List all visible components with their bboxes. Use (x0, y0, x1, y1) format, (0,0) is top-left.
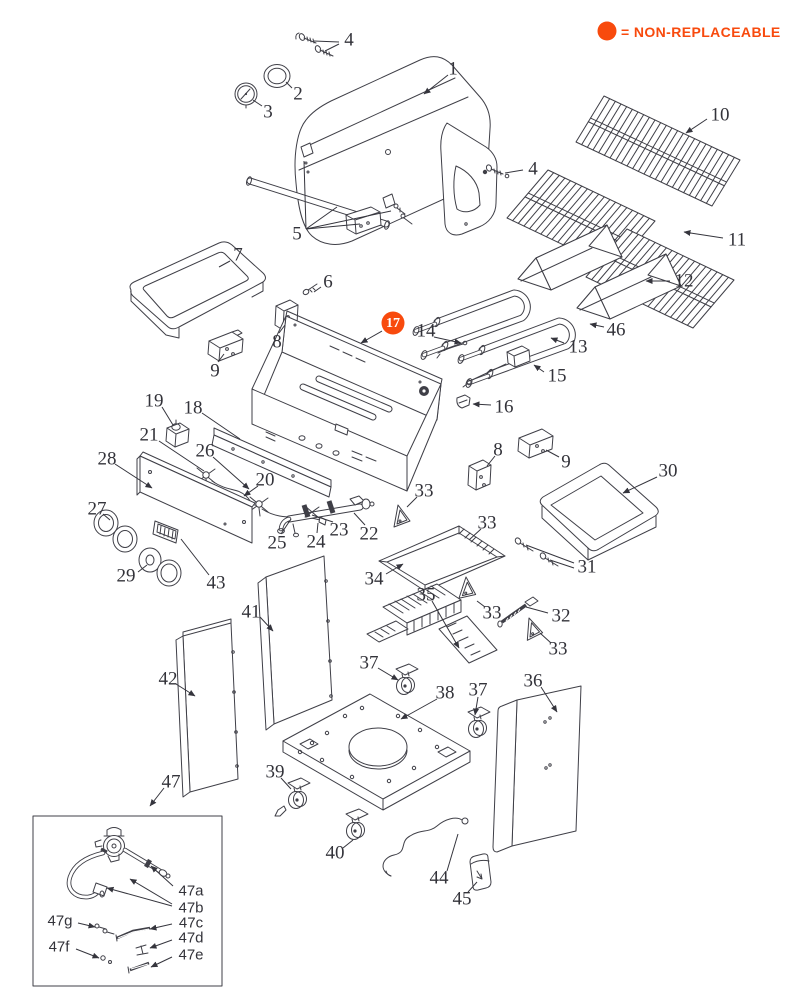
part-label: 40 (326, 843, 345, 864)
part-label: 36 (524, 671, 543, 692)
leader-line (505, 170, 523, 173)
part-label: 47d (178, 930, 203, 947)
part-label: 19 (145, 391, 164, 412)
part-label: 24 (307, 532, 327, 553)
part-label: 39 (266, 762, 285, 783)
part-label: 13 (569, 337, 588, 358)
part-label: 26 (196, 441, 215, 462)
part-label: 15 (548, 366, 567, 387)
leader-line (107, 888, 172, 906)
leader-line (162, 407, 173, 425)
part-16-clip (457, 395, 470, 408)
leader-line (534, 365, 544, 372)
part-label: 20 (256, 470, 275, 491)
part-label: 22 (360, 524, 379, 545)
part-label: 10 (711, 105, 730, 126)
legend: = NON-REPLACEABLE (598, 22, 781, 41)
part-40-caster (346, 809, 368, 840)
part-label: 45 (453, 889, 472, 910)
part-47b-hose (69, 849, 107, 897)
part-47f-nuts (101, 956, 112, 964)
part-label: 2 (293, 84, 303, 105)
part-label: 33 (415, 481, 434, 502)
part-label: 21 (140, 425, 159, 446)
part-label: 46 (607, 320, 626, 341)
part-label: 43 (207, 573, 226, 594)
leader-line (551, 338, 564, 343)
part-label: 38 (436, 683, 455, 704)
part-label: 29 (117, 566, 136, 587)
part-label: 47a (178, 883, 204, 900)
leader-line (546, 450, 559, 457)
part-label: 32 (552, 606, 571, 627)
part-label: 9 (561, 452, 571, 473)
part-label: 8 (272, 332, 282, 353)
part-47d-clip (136, 945, 148, 955)
part-label: 6 (323, 272, 333, 293)
part-label: 11 (728, 230, 746, 251)
leader-line (378, 668, 398, 680)
part-label: 33 (549, 639, 568, 660)
part-label: 16 (495, 397, 514, 418)
leader-line (684, 232, 723, 238)
leader-line (151, 957, 172, 967)
part-4-screws-top (296, 33, 333, 56)
part-6-screw (302, 284, 317, 296)
part-31-screws (514, 537, 558, 566)
legend-dot (598, 22, 617, 41)
leader-line (150, 924, 172, 929)
part-label: 30 (659, 461, 678, 482)
leader-line (286, 82, 292, 88)
leader-line (401, 699, 437, 719)
part-label: 41 (242, 602, 261, 623)
leader-line (181, 539, 209, 575)
part-label: 12 (675, 271, 694, 292)
part-label: 33 (483, 603, 502, 624)
part-label: 28 (98, 449, 117, 470)
part-label: 9 (210, 361, 220, 382)
part-47g-bolts (95, 924, 114, 934)
leader-line (526, 607, 548, 613)
part-39-locking-caster (275, 778, 310, 816)
part-label: 47g (47, 913, 72, 930)
part-label: 5 (292, 224, 302, 245)
part-19-ignition-module (166, 420, 189, 447)
part-47c-rod (116, 928, 150, 941)
part-label: 47 (162, 772, 181, 793)
part-label: 33 (478, 513, 497, 534)
leader-line (447, 834, 458, 871)
part-label: 27 (88, 499, 107, 520)
leader-line (150, 940, 172, 948)
part-47e-rod (128, 963, 149, 973)
part-9-bracket-left (208, 330, 243, 361)
part-38-bottom-shelf (283, 694, 470, 810)
part-7-side-shelf-frame (130, 242, 266, 338)
part-label: 34 (365, 569, 385, 590)
leader-line (76, 949, 99, 958)
part-29-knob (139, 548, 181, 586)
part-34-grease-tray (379, 526, 505, 591)
exploded-parts-diagram: = NON-REPLACEABLE 4231451011121314461516… (0, 0, 798, 1007)
leader-line (78, 923, 95, 927)
part-label: 47e (178, 947, 203, 964)
part-label: 3 (263, 102, 273, 123)
part-label: 37 (469, 680, 488, 701)
part-label: 42 (159, 669, 178, 690)
part-36-right-panel (493, 686, 581, 852)
part-label: 37 (360, 653, 379, 674)
part-42-left-panel (176, 619, 238, 797)
part-label: 4 (344, 30, 354, 51)
part-1-hood (295, 57, 497, 245)
part-label: 44 (430, 868, 450, 889)
part-label: 31 (578, 557, 597, 578)
legend-text: = NON-REPLACEABLE (621, 24, 781, 40)
part-label: 25 (268, 533, 287, 554)
part-label: 18 (184, 398, 203, 419)
part-label: 7 (233, 245, 243, 266)
leader-line (253, 100, 262, 106)
part-43-vent-plate (153, 521, 178, 543)
leader-line (325, 44, 339, 51)
leader-line (314, 41, 339, 42)
leader-line (361, 331, 382, 343)
part-label: 14 (417, 321, 437, 342)
leader-line (473, 404, 491, 405)
part-45-battery (470, 854, 491, 890)
leader-line (343, 840, 353, 848)
part-label: 4 (528, 159, 538, 180)
part-41-inner-panel (258, 556, 332, 730)
exploded-parts-diagram-page: = NON-REPLACEABLE 4231451011121314461516… (0, 0, 798, 1007)
highlighted-part-label: 17 (386, 316, 400, 331)
part-label: 8 (493, 440, 503, 461)
part-30-side-shelf-right (540, 463, 658, 560)
leader-line (590, 324, 604, 327)
part-8-bracket-right (468, 460, 491, 490)
part-label: 1 (448, 59, 458, 80)
part-2-bezel (264, 65, 290, 88)
part-label: 47f (49, 939, 71, 956)
part-3-thermometer (235, 83, 257, 108)
part-9-bracket-right (518, 429, 553, 458)
part-44-igniter-wire (383, 818, 468, 876)
part-label: 23 (330, 520, 349, 541)
part-label: 35 (417, 585, 436, 606)
leader-line (686, 119, 707, 133)
